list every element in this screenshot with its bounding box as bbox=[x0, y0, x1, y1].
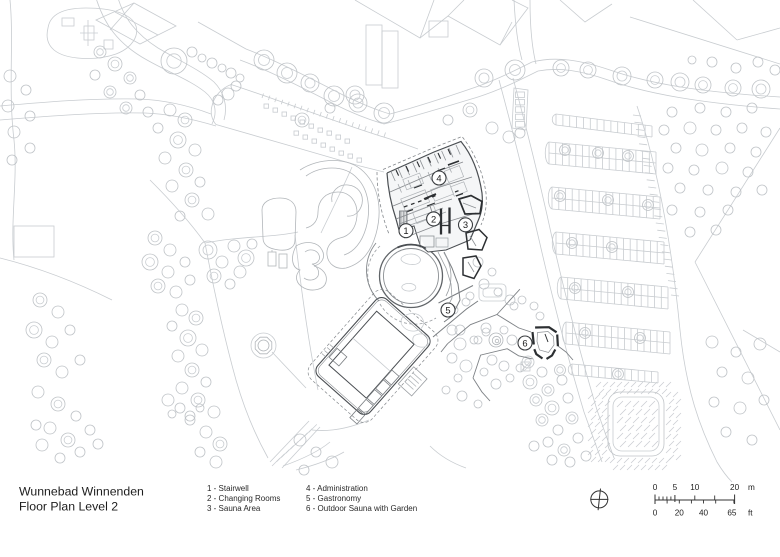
svg-text:5: 5 bbox=[445, 304, 450, 315]
svg-text:65: 65 bbox=[727, 509, 737, 518]
svg-text:ft: ft bbox=[748, 509, 753, 518]
svg-text:6: 6 bbox=[522, 337, 527, 348]
svg-text:2: 2 bbox=[431, 213, 436, 224]
svg-text:1: 1 bbox=[403, 225, 408, 236]
svg-text:4: 4 bbox=[436, 172, 441, 183]
svg-text:5 - Gastronomy: 5 - Gastronomy bbox=[306, 494, 361, 503]
svg-text:10: 10 bbox=[690, 483, 700, 492]
svg-text:40: 40 bbox=[699, 509, 709, 518]
svg-text:20: 20 bbox=[675, 509, 685, 518]
svg-text:3: 3 bbox=[463, 219, 468, 230]
svg-text:1 - Stairwell: 1 - Stairwell bbox=[207, 484, 249, 493]
svg-text:6 - Outdoor Sauna with Garden: 6 - Outdoor Sauna with Garden bbox=[306, 504, 417, 513]
svg-text:20: 20 bbox=[730, 483, 740, 492]
svg-text:4 - Administration: 4 - Administration bbox=[306, 484, 368, 493]
svg-text:2 - Changing Rooms: 2 - Changing Rooms bbox=[207, 494, 280, 503]
svg-text:m: m bbox=[748, 483, 755, 492]
svg-text:Floor Plan Level 2: Floor Plan Level 2 bbox=[19, 500, 118, 514]
svg-text:0: 0 bbox=[653, 509, 658, 518]
svg-text:0: 0 bbox=[653, 483, 658, 492]
svg-text:3 - Sauna Area: 3 - Sauna Area bbox=[207, 504, 261, 513]
svg-text:5: 5 bbox=[673, 483, 678, 492]
svg-text:Wunnebad Winnenden: Wunnebad Winnenden bbox=[19, 485, 144, 499]
